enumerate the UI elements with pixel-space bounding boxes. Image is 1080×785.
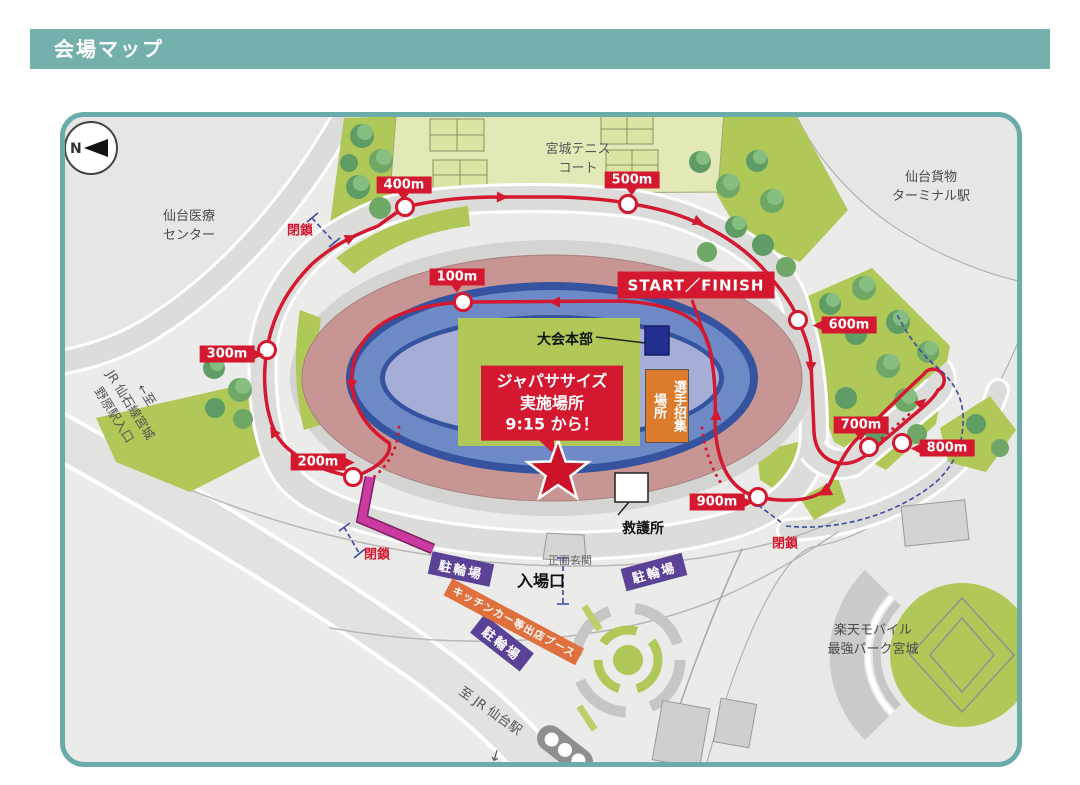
closure-label-northwest: 閉鎖	[287, 220, 313, 239]
marker-100m: 100m	[430, 269, 485, 286]
marker-300m: 300m	[200, 346, 255, 363]
marker-900m: 900m	[690, 494, 745, 511]
marker-700m: 700m	[834, 417, 889, 434]
label-entrance-gate: 入場口	[517, 569, 565, 592]
compass-icon: N	[65, 122, 117, 174]
label-tennis-court: 宮城テニス コート	[545, 141, 610, 179]
marker-500m: 500m	[605, 172, 660, 189]
label-first-aid: 救護所	[622, 519, 664, 539]
assembly-area-box: 選手招集 場所	[645, 369, 689, 443]
north-label: N	[70, 141, 82, 157]
label-main-entrance: 正面玄関	[548, 553, 592, 569]
closure-label-southwest: 閉鎖	[364, 544, 390, 563]
label-freight-terminal: 仙台貨物 ターミナル駅	[892, 169, 970, 207]
marker-200m: 200m	[291, 454, 346, 471]
header-bar: 会場マップ	[30, 29, 1050, 69]
event-info-box: ジャパササイズ 実施場所 9:15 から！	[481, 366, 623, 441]
marker-600m: 600m	[822, 317, 877, 334]
closure-label-southeast: 閉鎖	[772, 533, 798, 552]
marker-800m: 800m	[920, 440, 975, 457]
marker-400m: 400m	[377, 177, 432, 194]
label-hq: 大会本部	[537, 330, 593, 350]
page: 会場マップ	[0, 0, 1080, 785]
label-medical-center: 仙台医療 センター	[163, 208, 215, 246]
start-finish-banner: START／FINISH	[618, 272, 775, 299]
label-rakuten-park: 楽天モバイル 最強パーク宮城	[827, 622, 918, 660]
venue-map: N 仙台医療 センター 宮城テニス コート 仙台貨物 ターミナル駅 楽天モバイル…	[60, 112, 1022, 767]
page-title: 会場マップ	[30, 29, 1050, 69]
